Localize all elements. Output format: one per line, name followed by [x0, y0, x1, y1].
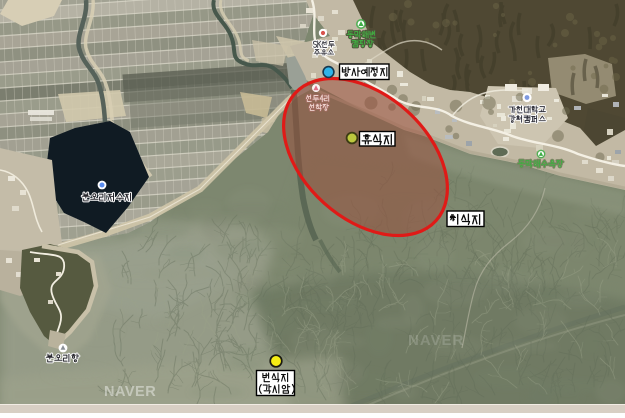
svg-text:NAVER: NAVER — [104, 384, 156, 400]
svg-text:NAVER: NAVER — [408, 332, 464, 349]
